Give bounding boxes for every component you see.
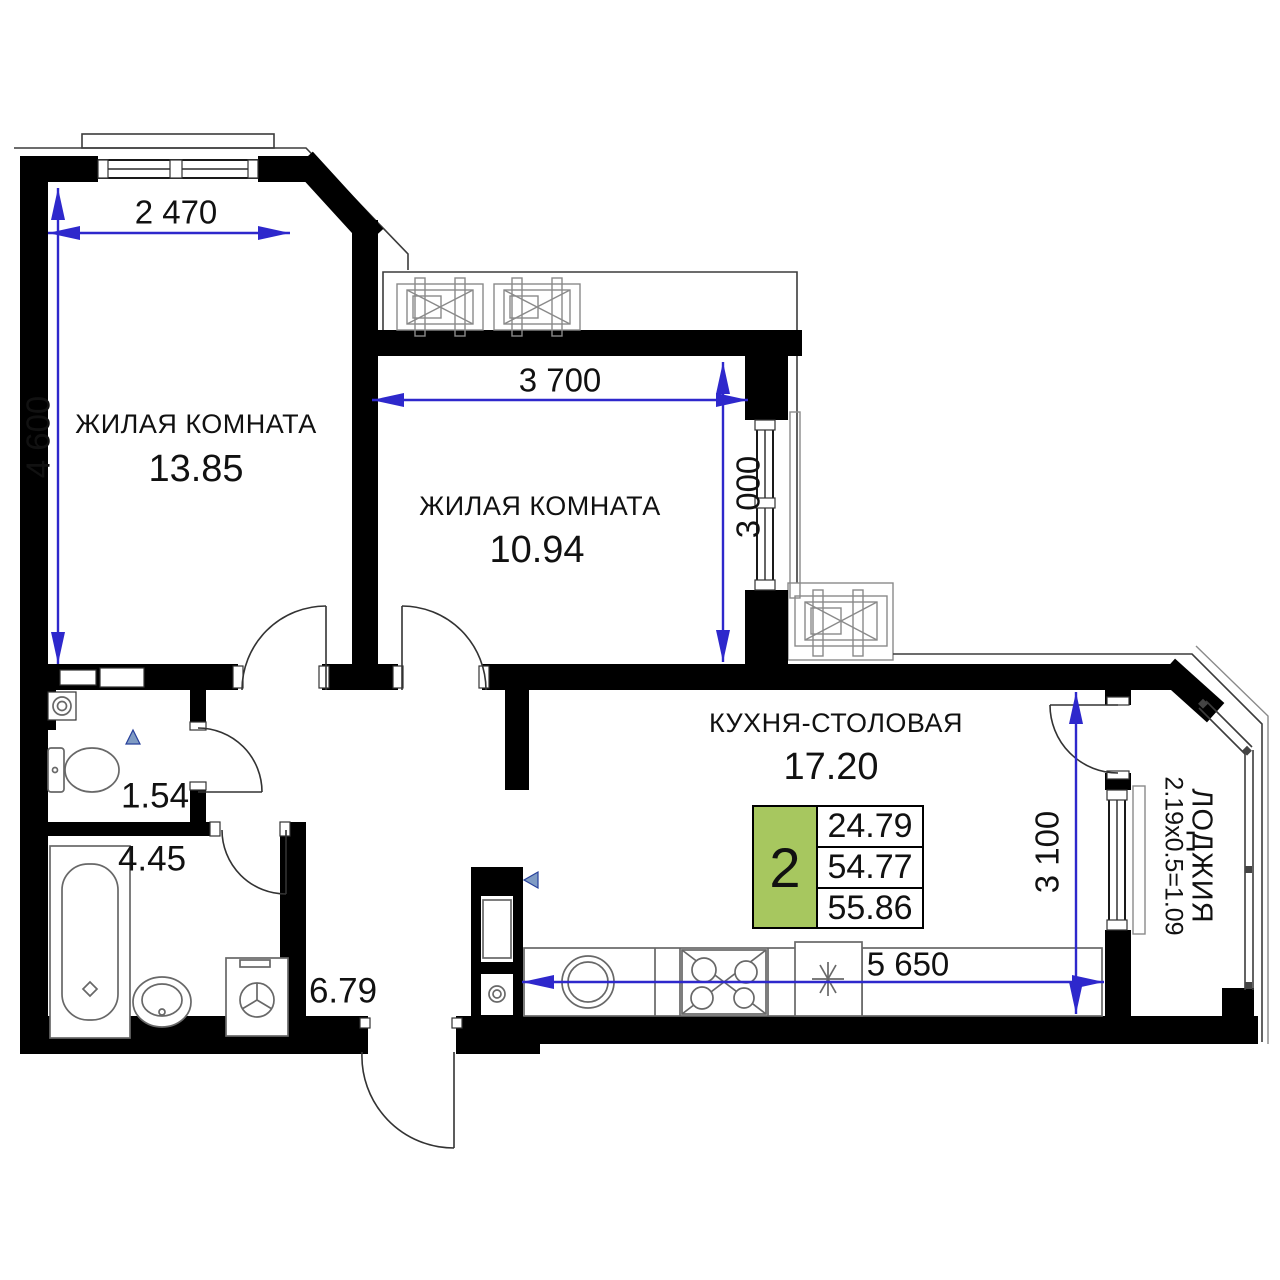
walls xyxy=(20,156,1258,1054)
room2-name: ЖИЛАЯ КОМНАТА xyxy=(419,492,660,520)
fridge-icon xyxy=(795,942,862,1016)
kitchen-area: 17.20 xyxy=(783,748,878,788)
toilet xyxy=(48,748,119,792)
door-loggia xyxy=(1050,697,1129,779)
door-entrance xyxy=(360,1018,462,1148)
dimension-lines xyxy=(48,188,1104,1014)
dim-label-room1-height: 4 600 xyxy=(22,396,57,479)
bathroom-area: 4.45 xyxy=(118,842,186,879)
ac-unit-icon xyxy=(795,590,887,656)
floor-area-value: 54.77 xyxy=(818,848,922,889)
dim-label-kitchen-width: 5 650 xyxy=(867,948,950,983)
kitchen-counter xyxy=(524,942,1102,1016)
wc-area: 1.54 xyxy=(121,779,189,816)
window-loggia xyxy=(1107,786,1145,934)
door-room1 xyxy=(233,606,329,690)
slab-outline xyxy=(14,148,1268,1044)
door-wc xyxy=(190,722,262,792)
dim-label-room2-width: 3 700 xyxy=(519,364,602,399)
room1-name: ЖИЛАЯ КОМНАТА xyxy=(75,410,316,438)
total-area-value: 55.86 xyxy=(818,889,922,928)
dim-room2-height xyxy=(716,362,730,662)
dim-label-room2-height: 3 000 xyxy=(732,456,767,539)
kitchen-name: КУХНЯ-СТОЛОВАЯ xyxy=(709,709,963,737)
room-count-badge: 2 xyxy=(754,807,818,927)
door-room2 xyxy=(393,606,489,690)
loggia-name: ЛОДЖИЯ xyxy=(1186,776,1216,935)
dim-label-room1-width: 2 470 xyxy=(135,196,218,231)
loggia-dims: 2.19х0.5=1.09 xyxy=(1160,776,1186,935)
floor-plan-drawing xyxy=(0,0,1280,1280)
window-room1 xyxy=(82,134,274,178)
kitchen-shaft xyxy=(472,868,522,1016)
hallway-area: 6.79 xyxy=(309,974,377,1011)
door-bathroom xyxy=(210,822,290,894)
room1-area: 13.85 xyxy=(148,450,243,490)
bathroom-sink xyxy=(133,977,191,1027)
living-area-value: 24.79 xyxy=(818,807,922,848)
room2-area: 10.94 xyxy=(489,531,584,571)
loggia-label: ЛОДЖИЯ 2.19х0.5=1.09 xyxy=(1160,776,1217,935)
shaft-openings xyxy=(48,668,144,720)
ac-unit-icon xyxy=(397,278,483,336)
floor-plan: ЖИЛАЯ КОМНАТА 13.85 ЖИЛАЯ КОМНАТА 10.94 … xyxy=(0,0,1280,1280)
ac-unit-icon xyxy=(494,278,580,336)
dim-label-kitchen-height: 3 100 xyxy=(1031,811,1066,894)
washing-machine xyxy=(226,958,288,1036)
apartment-info-badge: 2 24.79 54.77 55.86 xyxy=(752,805,924,929)
